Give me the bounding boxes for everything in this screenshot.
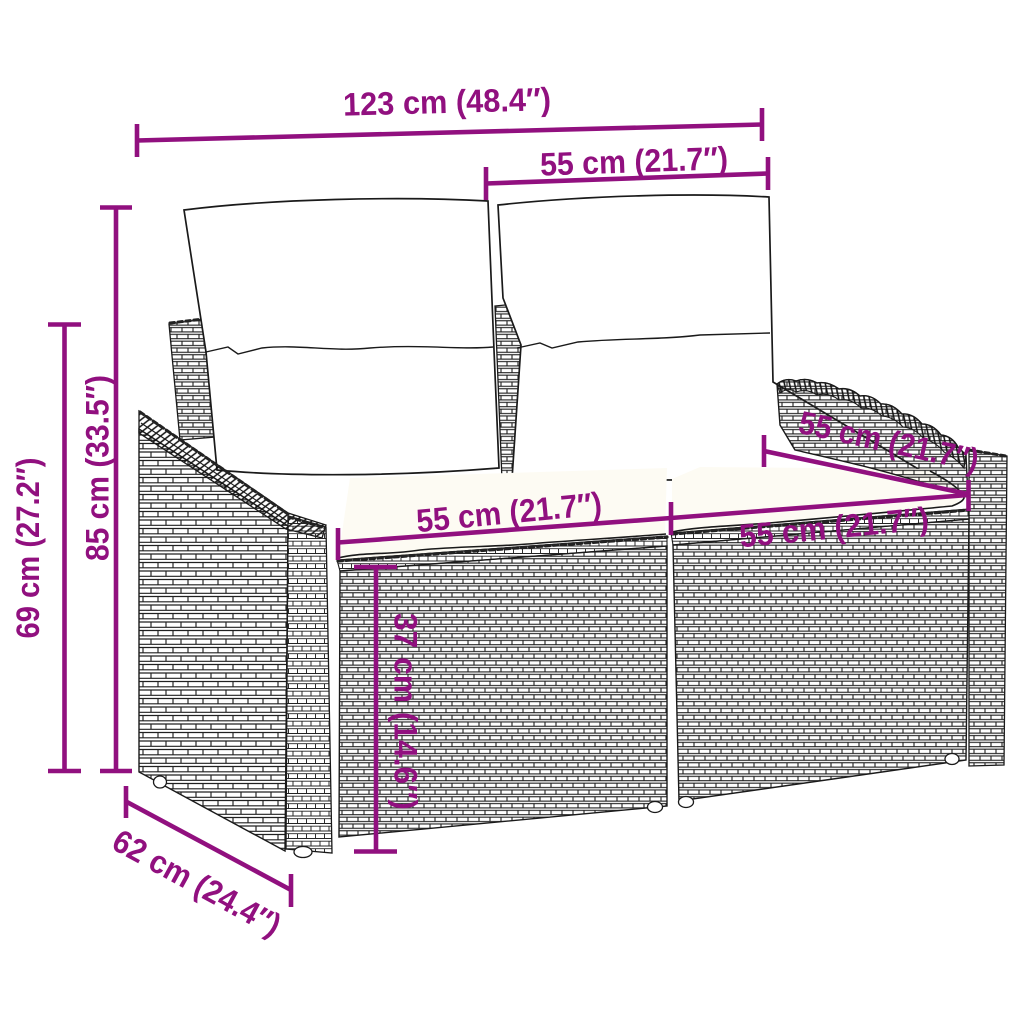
svg-text:69 cm (27.2″): 69 cm (27.2″) xyxy=(10,458,46,639)
svg-text:85 cm (33.5″): 85 cm (33.5″) xyxy=(79,375,115,561)
svg-text:55 cm (21.7″): 55 cm (21.7″) xyxy=(539,140,728,183)
svg-text:37 cm (14.6″): 37 cm (14.6″) xyxy=(388,613,424,810)
svg-text:123 cm (48.4″): 123 cm (48.4″) xyxy=(343,81,552,122)
